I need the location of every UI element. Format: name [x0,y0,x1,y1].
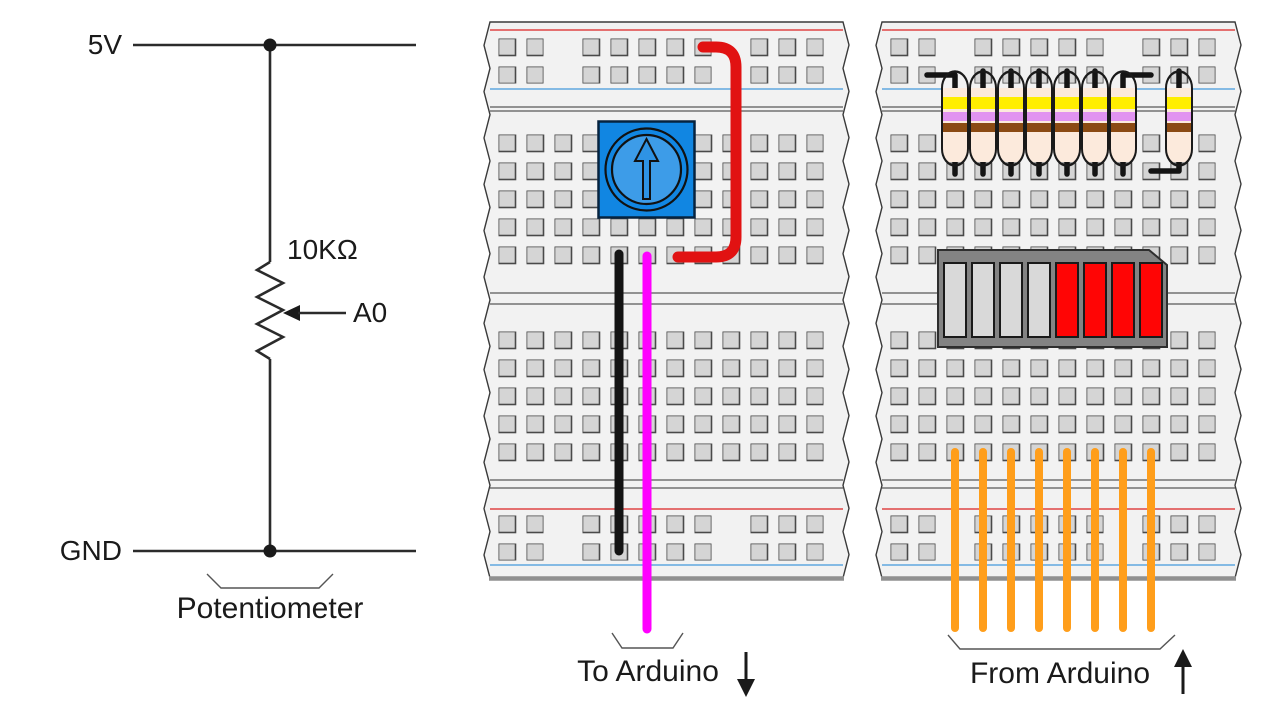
bargraph-segment-off [1028,263,1050,337]
bargraph-breadboard: From Arduino [876,22,1241,694]
resistor-value-label: 10KΩ [287,234,358,265]
to-arduino-label: To Arduino [577,655,719,688]
wiring-diagram: 5V GND 10KΩ A0 Potentiometer To Arduino [0,0,1280,720]
potentiometer-caption: Potentiometer [177,592,364,625]
bargraph-segment-off [972,263,994,337]
a0-arrowhead [283,305,300,321]
circuit-diagram-page: 5V GND 10KΩ A0 Potentiometer To Arduino [0,0,1280,720]
bargraph-segment-on [1140,263,1162,337]
potentiometer-breadboard: To Arduino [484,22,849,697]
up-arrowhead [1174,649,1192,667]
down-arrowhead [737,679,755,697]
bargraph-segment-on [1056,263,1078,337]
bargraph-segment-on [1112,263,1134,337]
breadboard-base [484,22,849,579]
bargraph-segment-on [1084,263,1106,337]
bargraph-segment-off [1000,263,1022,337]
arrow-down-icon [737,652,755,697]
power-label: 5V [88,29,123,60]
junction-dot-5v [264,39,277,52]
analog-pin-label: A0 [353,297,387,328]
junction-dot-gnd [264,545,277,558]
ground-label: GND [60,535,122,566]
schematic-panel: 5V GND 10KΩ A0 Potentiometer [60,29,416,625]
arrow-up-icon [1174,649,1192,694]
to-arduino-brace [612,633,683,648]
led-bargraph-module [938,250,1167,347]
from-arduino-label: From Arduino [970,657,1150,690]
resistor-zigzag-symbol [257,262,283,359]
potentiometer-knob [599,122,695,218]
bargraph-segment-off [944,263,966,337]
schematic-brace [207,574,333,588]
from-arduino-brace [948,635,1175,649]
a0-tap-arrow-icon [283,305,346,321]
